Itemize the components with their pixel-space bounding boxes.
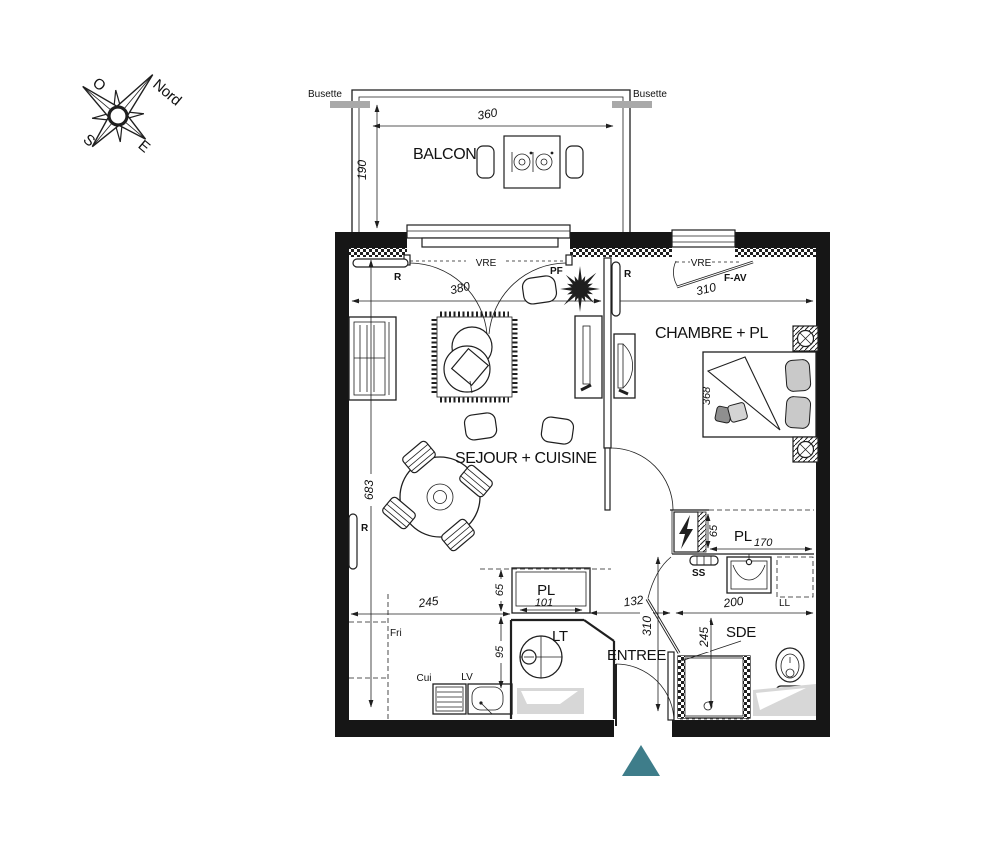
svg-text:190: 190 (355, 160, 369, 180)
radiator-bedroom: R (612, 262, 632, 316)
dim-kitchen-run: 245 (351, 594, 510, 614)
plant-icon (560, 266, 600, 312)
sink (468, 684, 512, 714)
radiator-living: R (349, 514, 369, 569)
radiator-top: R (353, 259, 408, 283)
busette-left-label: Busette (308, 89, 342, 100)
svg-text:65: 65 (708, 524, 720, 537)
dining-chair (458, 464, 494, 499)
bed: 368 (701, 352, 816, 437)
svg-text:380: 380 (449, 279, 472, 298)
busette-bar-right (612, 101, 652, 108)
kitchen: Fri Cui LV (349, 594, 512, 719)
bedroom-label: CHAMBRE + PL (655, 325, 769, 342)
shower (678, 656, 750, 719)
compass-rose-icon: Nord O S E (57, 45, 184, 170)
french-door-swing (410, 263, 487, 334)
electrical-panel (674, 512, 706, 552)
dim-entry-depth: 310 (640, 557, 658, 711)
svg-text:R: R (394, 272, 402, 283)
svg-text:170: 170 (754, 537, 773, 549)
dim-bed-length: 368 (701, 386, 713, 405)
compass-north-label: Nord (149, 76, 184, 109)
dishwasher-label: LV (461, 672, 473, 683)
pouf (521, 275, 557, 305)
dim-balcony-width: 360 (373, 105, 613, 126)
sde-label: SDE (726, 624, 756, 641)
sofa (349, 317, 396, 400)
balcony-table (477, 136, 583, 188)
dining-chair (401, 440, 437, 475)
partition-living-bedroom (604, 258, 611, 448)
dim-bedroom-width: 310 (695, 280, 718, 299)
pillow (785, 396, 811, 429)
exterior-walls (335, 232, 830, 737)
floor-plan-drawing: Nord O S E Busette Busette BALCON 360 (0, 0, 1000, 857)
lt-threshold (517, 688, 584, 714)
balcony-label: BALCON (413, 146, 476, 163)
svg-text:PL: PL (734, 528, 752, 545)
svg-text:65: 65 (494, 583, 506, 596)
compass-east-label: E (135, 137, 154, 156)
dim-kitchen-depth: 95 (493, 617, 506, 688)
living-room-label: SEJOUR + CUISINE (455, 450, 597, 467)
dresser (614, 334, 635, 398)
svg-text:R: R (624, 269, 632, 280)
svg-text:245: 245 (697, 627, 711, 648)
ll-label: LL (779, 598, 791, 609)
rug-and-armchair (434, 314, 515, 400)
ss-label: SS (692, 568, 706, 579)
washbasin (727, 554, 771, 593)
wall-insulation-strip (735, 248, 816, 257)
cooker-label: Cui (416, 673, 431, 684)
lt-label: LT (552, 628, 568, 645)
f-av-label: F-AV (724, 273, 747, 284)
svg-text:R: R (361, 523, 369, 534)
busette-right-label: Busette (633, 89, 667, 100)
towel-rail: SS (690, 556, 718, 579)
svg-text:95: 95 (494, 645, 506, 658)
balcony: Busette Busette BALCON 360 190 (308, 89, 667, 232)
wall-insulation-strip (570, 248, 672, 257)
tv-unit (575, 316, 602, 398)
dim-kitchen-inset: 65 (493, 570, 506, 611)
sde-threshold (753, 684, 816, 716)
wall-insulation-strip (349, 248, 407, 257)
floor-plan: Nord O S E Busette Busette BALCON 360 (0, 0, 1000, 857)
svg-text:200: 200 (722, 594, 745, 611)
washer-zone: LL (777, 557, 813, 609)
cushion (727, 402, 748, 423)
pouf (463, 412, 497, 441)
pf-label: PF (550, 266, 563, 277)
vre-bedroom-label: VRE (691, 258, 712, 269)
dim-living-width: 380 (449, 279, 472, 298)
svg-text:683: 683 (362, 480, 376, 500)
busette-bar-left (330, 101, 370, 108)
pouf (540, 416, 574, 445)
svg-text:132: 132 (623, 593, 645, 610)
vre-living-label: VRE (476, 258, 497, 269)
svg-text:245: 245 (417, 594, 440, 611)
dim-closet-depth: 65 (708, 514, 720, 548)
dim-sde-depth: 245 (697, 618, 711, 708)
svg-text:310: 310 (640, 616, 654, 636)
svg-text:101: 101 (535, 597, 553, 609)
entry-label: ENTREE (607, 647, 666, 664)
bedroom-door (605, 448, 673, 510)
hall-closet: PL 101 (512, 568, 590, 613)
nightstand (793, 437, 818, 462)
entrance-marker-triangle (622, 745, 660, 776)
entrance-door (616, 664, 674, 726)
dim-sde-width: 200 (676, 594, 813, 613)
fridge-label: Fri (390, 628, 402, 639)
stove (433, 684, 466, 714)
pillow (785, 359, 811, 392)
svg-text:360: 360 (476, 105, 498, 122)
nightstand (793, 326, 818, 351)
laundry-niche: LT (511, 620, 614, 719)
dim-balcony-depth: 190 (355, 105, 377, 228)
bedroom-closet: PL 170 65 (708, 514, 812, 549)
